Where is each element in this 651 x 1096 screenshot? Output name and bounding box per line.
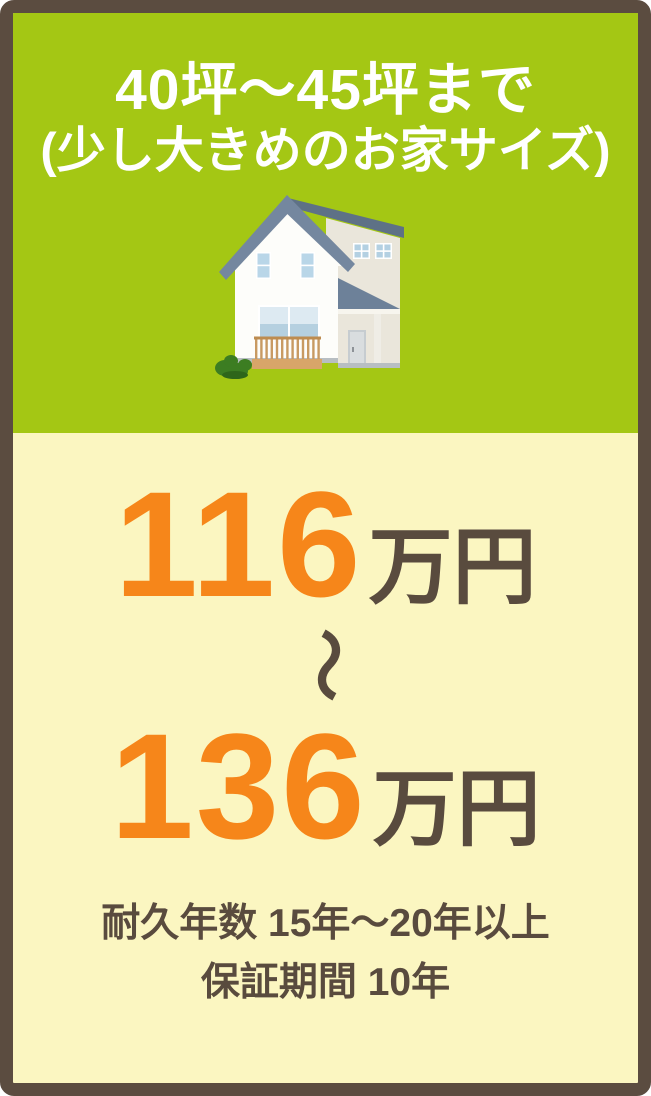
- wing-foundation: [338, 363, 400, 368]
- price-min: 116 万円: [13, 469, 638, 619]
- balcony-window: [258, 305, 320, 340]
- title-line-2: (少し大きめのお家サイズ): [13, 123, 638, 180]
- price-max-value: 136: [110, 711, 366, 861]
- price-max: 136 万円: [13, 711, 638, 861]
- upper-window: [256, 252, 271, 279]
- range-tilde: 〜: [289, 628, 363, 702]
- upper-window: [300, 252, 315, 279]
- price-min-unit: 万円: [368, 525, 536, 609]
- wing-window: [353, 243, 370, 259]
- range-separator: 〜: [13, 619, 638, 711]
- notes: 耐久年数 15年〜20年以上 保証期間 10年: [13, 895, 638, 1012]
- wing-window: [375, 243, 392, 259]
- price-section: 116 万円 〜 136 万円 耐久年数 15年〜20年以上 保証期間 10年: [13, 433, 638, 1096]
- size-title: 40坪〜45坪まで (少し大きめのお家サイズ): [13, 59, 638, 180]
- durability-note: 耐久年数 15年〜20年以上: [13, 895, 638, 954]
- price-max-unit: 万円: [373, 767, 541, 851]
- price-min-value: 116: [114, 469, 362, 619]
- price-card: 40坪〜45坪まで (少し大きめのお家サイズ): [0, 0, 651, 1096]
- header-section: 40坪〜45坪まで (少し大きめのお家サイズ): [13, 13, 638, 433]
- porch-post: [374, 314, 381, 363]
- porch-fascia: [336, 309, 400, 314]
- house-illustration: [204, 192, 404, 382]
- front-door: [348, 330, 366, 363]
- title-line-1: 40坪〜45坪まで: [13, 59, 638, 123]
- warranty-note: 保証期間 10年: [13, 954, 638, 1013]
